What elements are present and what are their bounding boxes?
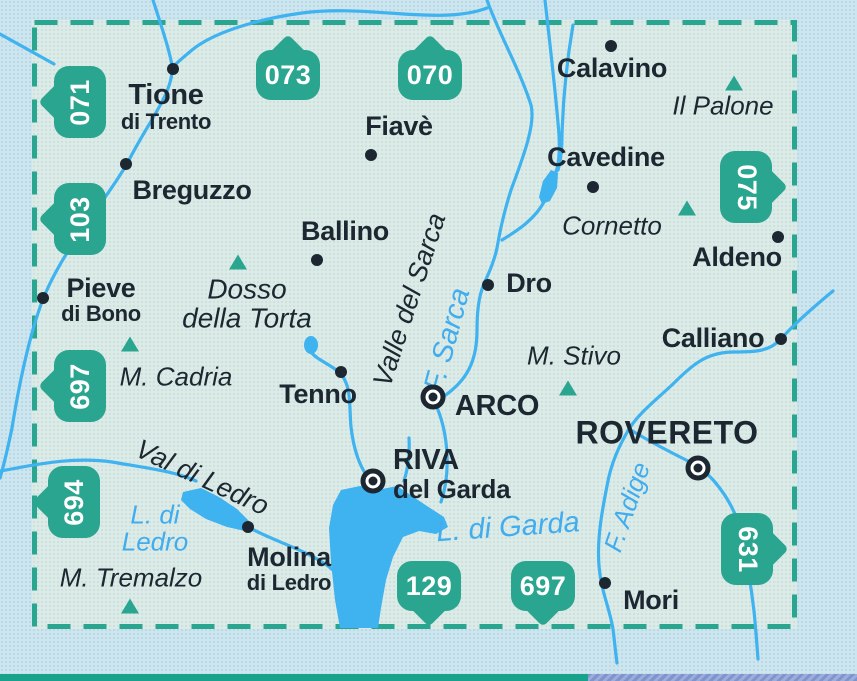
map-badge-075: 075: [720, 151, 772, 223]
town-label-molina: Molinadi Ledro: [247, 544, 331, 594]
peak-label-cornetto: Cornetto: [562, 213, 662, 240]
town-dot-pieve-di-bono: [37, 292, 49, 304]
map-badge-694: 694: [48, 466, 100, 538]
peak-triangle-dosso: [229, 255, 247, 270]
bottom-band-blue: [588, 674, 857, 681]
peak-label-cadria: M. Cadria: [120, 364, 233, 391]
lake-cavedine: [539, 170, 558, 204]
city-label-rovereto: ROVERETO: [576, 417, 759, 450]
town-label-mori: Mori: [623, 587, 679, 615]
town-dot-breguzzo: [120, 158, 132, 170]
town-dot-molina: [242, 521, 254, 533]
water-label-l-di-ledro: L. diLedro: [122, 501, 189, 554]
peak-triangle-tremalzo: [121, 599, 139, 614]
town-dot-tione: [167, 63, 179, 75]
town-label-cavedine: Cavedine: [547, 144, 665, 172]
town-dot-cavedine: [587, 181, 599, 193]
town-dot-calavino: [605, 40, 617, 52]
town-label-tione: Tionedi Trento: [121, 81, 211, 133]
bottom-band-teal: [0, 674, 588, 681]
map-badge-697-west: 697: [54, 350, 106, 422]
town-dot-ballino: [311, 254, 323, 266]
map-badge-697-south: 697: [511, 561, 575, 611]
town-dot-dro: [482, 279, 494, 291]
town-label-tenno: Tenno: [279, 381, 356, 409]
peak-triangle-il-palone: [725, 76, 743, 91]
town-label-aldeno: Aldeno: [692, 244, 782, 272]
town-label-calliano: Calliano: [662, 325, 765, 353]
town-label-calavino: Calavino: [557, 55, 667, 83]
map-badge-071: 071: [54, 66, 106, 138]
river-top-left: [0, 34, 54, 64]
peak-triangle-stivo: [559, 381, 577, 396]
map-badge-070: 070: [398, 50, 462, 100]
town-dot-fiave: [365, 149, 377, 161]
peak-label-dosso: Dossodella Torta: [182, 275, 312, 332]
peak-triangle-cornetto: [678, 201, 696, 216]
town-label-dro: Dro: [506, 270, 552, 298]
peak-label-il-palone: Il Palone: [672, 93, 773, 120]
peak-triangle-cadria: [121, 337, 139, 352]
river-cavedine-outflow: [502, 200, 545, 240]
town-dot-mori: [599, 577, 611, 589]
city-ring-riva: [361, 469, 386, 494]
map-badge-631: 631: [721, 513, 773, 585]
city-label-arco: ARCO: [455, 392, 539, 422]
peak-label-tremalzo: M. Tremalzo: [60, 565, 203, 592]
map-badge-073: 073: [256, 50, 320, 100]
map-badge-103: 103: [54, 183, 106, 255]
city-ring-rovereto: [686, 456, 711, 481]
town-dot-calliano: [775, 333, 787, 345]
town-dot-tenno: [335, 366, 347, 378]
city-ring-arco: [421, 385, 446, 410]
town-dot-aldeno: [772, 231, 784, 243]
city-label-riva: RIVAdel Garda: [393, 446, 510, 502]
town-label-fiave: Fiavè: [365, 113, 433, 141]
town-label-ballino: Ballino: [301, 218, 389, 246]
map-overview: 071 073 070 103 075 697 694 129 697 631 …: [0, 0, 857, 681]
town-label-pieve-di-bono: Pievedi Bono: [61, 275, 141, 325]
peak-label-stivo: M. Stivo: [527, 343, 621, 370]
map-badge-129: 129: [397, 561, 461, 611]
town-label-breguzzo: Breguzzo: [132, 177, 251, 205]
